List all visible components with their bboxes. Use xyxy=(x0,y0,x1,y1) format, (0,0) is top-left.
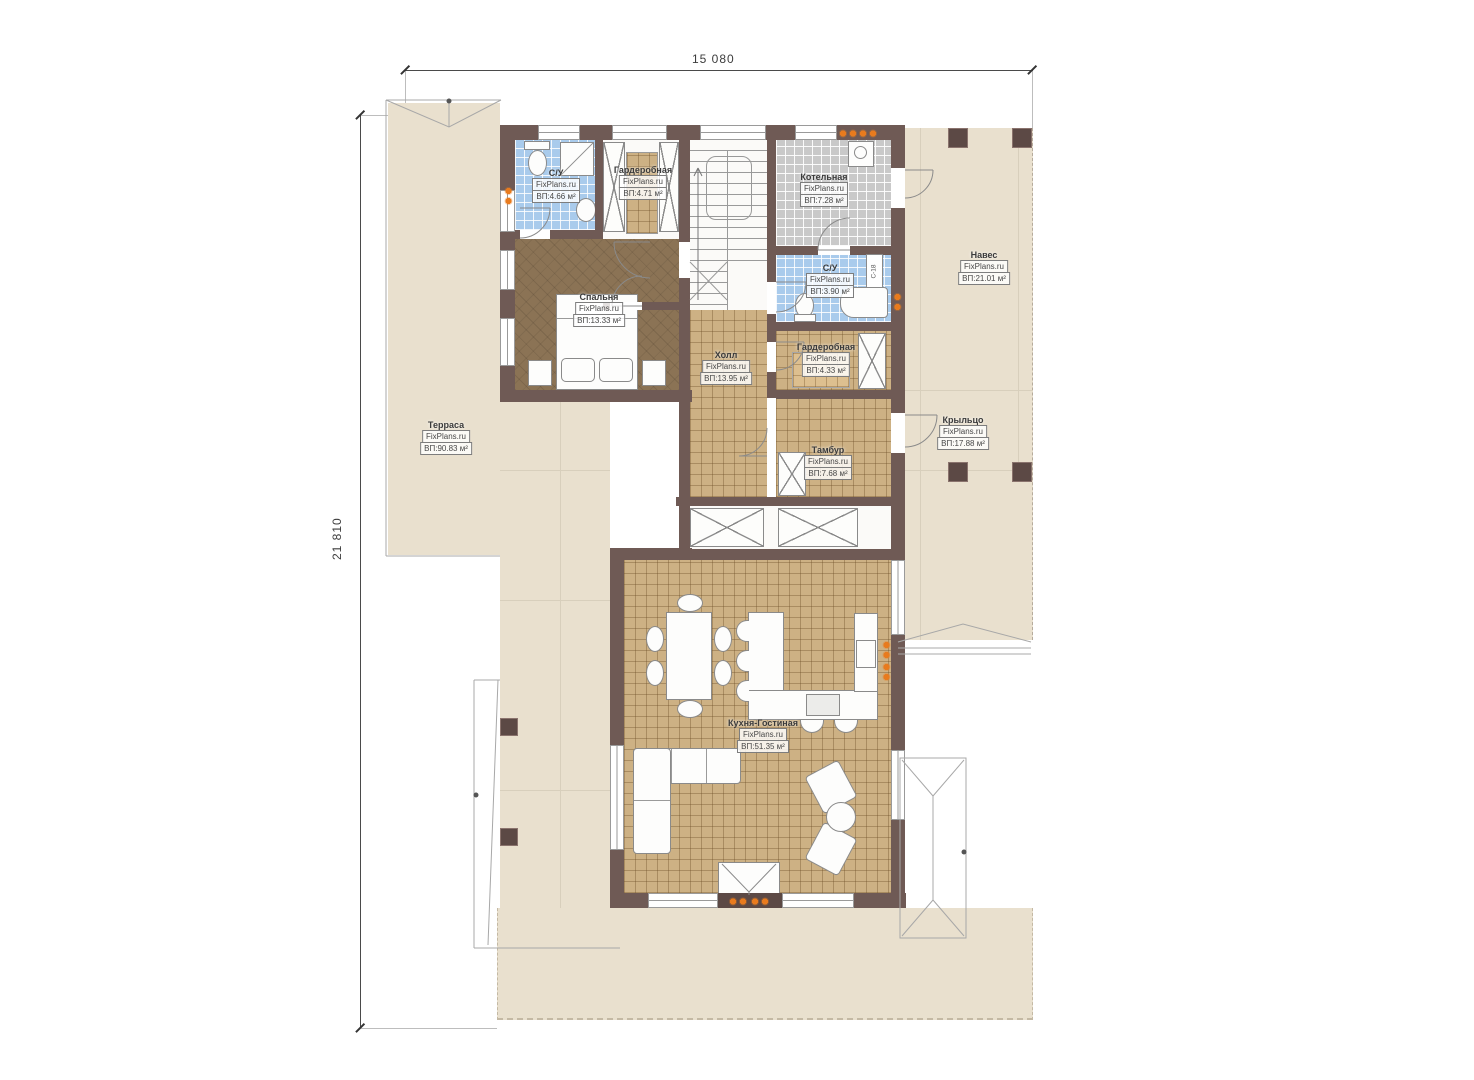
bottom-terrace-area xyxy=(497,908,1033,1020)
dining-chair xyxy=(646,660,664,686)
paving-seam xyxy=(560,402,561,908)
cooktop xyxy=(856,640,876,668)
room-label-bedroom: Спальня FixPlans.ru ВП:13.33 м² xyxy=(573,292,625,327)
window xyxy=(500,318,515,366)
column xyxy=(1012,128,1032,148)
coffee-table xyxy=(826,802,856,832)
room-name: Крыльцо xyxy=(943,415,984,425)
room-label-su1: С/У FixPlans.ru ВП:4.66 м² xyxy=(532,168,580,203)
sofa xyxy=(633,748,671,854)
floor-plan: 15 080 21 810 xyxy=(0,0,1474,1080)
pillow xyxy=(561,358,595,382)
dining-chair xyxy=(646,626,664,652)
window xyxy=(891,750,905,820)
room-name: Кухня-Гостиная xyxy=(728,718,798,728)
pillow xyxy=(599,358,633,382)
room-label-boiler: Котельная FixPlans.ru ВП:7.28 м² xyxy=(800,172,848,207)
room-area: ВП:4.71 м² xyxy=(619,187,666,200)
duct-box: С-18 xyxy=(866,254,883,288)
room-label-canopy: Навес FixPlans.ru ВП:21.01 м² xyxy=(958,250,1010,285)
extension-line xyxy=(361,115,388,116)
door-opening-su2 xyxy=(767,282,776,314)
room-area: ВП:17.88 м² xyxy=(937,437,989,450)
room-area: ВП:7.28 м² xyxy=(800,194,847,207)
window xyxy=(500,250,515,290)
door-opening-entry xyxy=(891,413,905,453)
fireplace-dots xyxy=(728,897,748,906)
dining-table xyxy=(666,612,712,700)
room-area: ВП:4.33 м² xyxy=(802,364,849,377)
dining-chair xyxy=(677,700,703,718)
duct-label: С-18 xyxy=(871,264,878,278)
stairs-landing-rail xyxy=(706,156,752,220)
paving-seam xyxy=(905,390,1033,391)
sofa-seam xyxy=(671,749,672,783)
fireplace-dots xyxy=(750,897,770,906)
room-name: Навес xyxy=(971,250,998,260)
column xyxy=(948,128,968,148)
paving-seam xyxy=(920,128,921,640)
dining-chair xyxy=(714,626,732,652)
room-area: ВП:13.95 м² xyxy=(700,372,752,385)
closet-x xyxy=(778,508,858,547)
dining-chair xyxy=(714,660,732,686)
room-area: ВП:51.35 м² xyxy=(737,740,789,753)
paving-seam xyxy=(500,600,610,601)
room-area: ВП:3.90 м² xyxy=(806,285,853,298)
room-floor-hall xyxy=(690,310,767,497)
canopy-porch-area xyxy=(905,128,1033,640)
room-area: ВП:13.33 м² xyxy=(573,314,625,327)
column xyxy=(1012,462,1032,482)
window xyxy=(891,560,905,635)
wall xyxy=(776,390,891,399)
terrace-area xyxy=(388,103,500,555)
room-label-porch: Крыльцо FixPlans.ru ВП:17.88 м² xyxy=(937,415,989,450)
window xyxy=(648,893,718,908)
door-opening-su1 xyxy=(520,230,550,239)
door-opening-wardrobe2 xyxy=(767,342,776,372)
room-name: Гардеробная xyxy=(797,342,855,352)
wardrobe-x xyxy=(858,333,886,389)
door-opening-bedroom xyxy=(679,242,690,278)
wall xyxy=(679,549,891,560)
room-area: ВП:4.66 м² xyxy=(532,190,579,203)
column xyxy=(500,718,518,736)
wall xyxy=(610,548,624,908)
dimension-height-label: 21 810 xyxy=(330,517,344,560)
wall xyxy=(676,497,891,506)
extension-line xyxy=(361,1028,497,1029)
stove-burners xyxy=(882,662,891,682)
room-label-wardrobe2: Гардеробная FixPlans.ru ВП:4.33 м² xyxy=(797,342,855,377)
dimension-line-left xyxy=(360,115,361,1028)
nightstand xyxy=(528,360,552,386)
closet-x xyxy=(690,508,764,547)
stove-burners xyxy=(882,640,891,660)
room-label-terrace: Терраса FixPlans.ru ВП:90.83 м² xyxy=(420,420,472,455)
window xyxy=(610,745,624,850)
window xyxy=(782,893,854,908)
room-name: Терраса xyxy=(428,420,464,430)
wall xyxy=(776,322,891,331)
paving-seam xyxy=(1018,128,1019,470)
radiator-dots xyxy=(858,129,878,138)
radiator-dots xyxy=(838,129,858,138)
wall xyxy=(595,140,603,238)
sofa-seam xyxy=(634,800,670,801)
extension-line xyxy=(1032,71,1033,128)
window xyxy=(700,125,766,140)
dimension-line-top xyxy=(405,70,1033,71)
dimension-width-label: 15 080 xyxy=(692,52,735,66)
door-opening-tambour xyxy=(767,424,776,458)
room-label-hall: Холл FixPlans.ru ВП:13.95 м² xyxy=(700,350,752,385)
window xyxy=(612,125,667,140)
paving-seam xyxy=(500,470,610,471)
window xyxy=(538,125,580,140)
room-name: С/У xyxy=(823,263,838,273)
extension-line xyxy=(405,71,406,103)
boiler-dial xyxy=(854,146,867,159)
column xyxy=(500,828,518,846)
room-name: Тамбур xyxy=(812,445,845,455)
radiator-dots xyxy=(504,186,513,206)
sofa-seam xyxy=(706,749,707,783)
toilet-tank xyxy=(524,141,550,150)
door-opening-canopy xyxy=(891,168,905,208)
dining-chair xyxy=(677,594,703,612)
kitchen-counter xyxy=(748,612,784,692)
room-name: Холл xyxy=(715,350,738,360)
room-name: Спальня xyxy=(580,292,619,302)
room-label-kitchen: Кухня-Гостиная FixPlans.ru ВП:51.35 м² xyxy=(728,718,798,753)
fireplace xyxy=(718,862,780,895)
kitchen-sink xyxy=(806,694,840,716)
radiator-dots xyxy=(893,292,902,312)
room-area: ВП:21.01 м² xyxy=(958,272,1010,285)
room-area: ВП:7.68 м² xyxy=(804,467,851,480)
toilet-tank xyxy=(794,314,816,322)
wall xyxy=(500,390,692,402)
room-name: С/У xyxy=(549,168,564,178)
room-name: Гардеробная xyxy=(614,165,672,175)
nightstand xyxy=(642,360,666,386)
room-area: ВП:90.83 м² xyxy=(420,442,472,455)
door-opening-boiler xyxy=(818,246,850,255)
room-label-tambour: Тамбур FixPlans.ru ВП:7.68 м² xyxy=(804,445,852,480)
paving-seam xyxy=(500,790,610,791)
window xyxy=(795,125,837,140)
closet-x xyxy=(778,452,806,496)
column xyxy=(948,462,968,482)
room-label-wardrobe1: Гардеробная FixPlans.ru ВП:4.71 м² xyxy=(614,165,672,200)
room-label-su2: С/У FixPlans.ru ВП:3.90 м² xyxy=(806,263,854,298)
room-name: Котельная xyxy=(800,172,847,182)
